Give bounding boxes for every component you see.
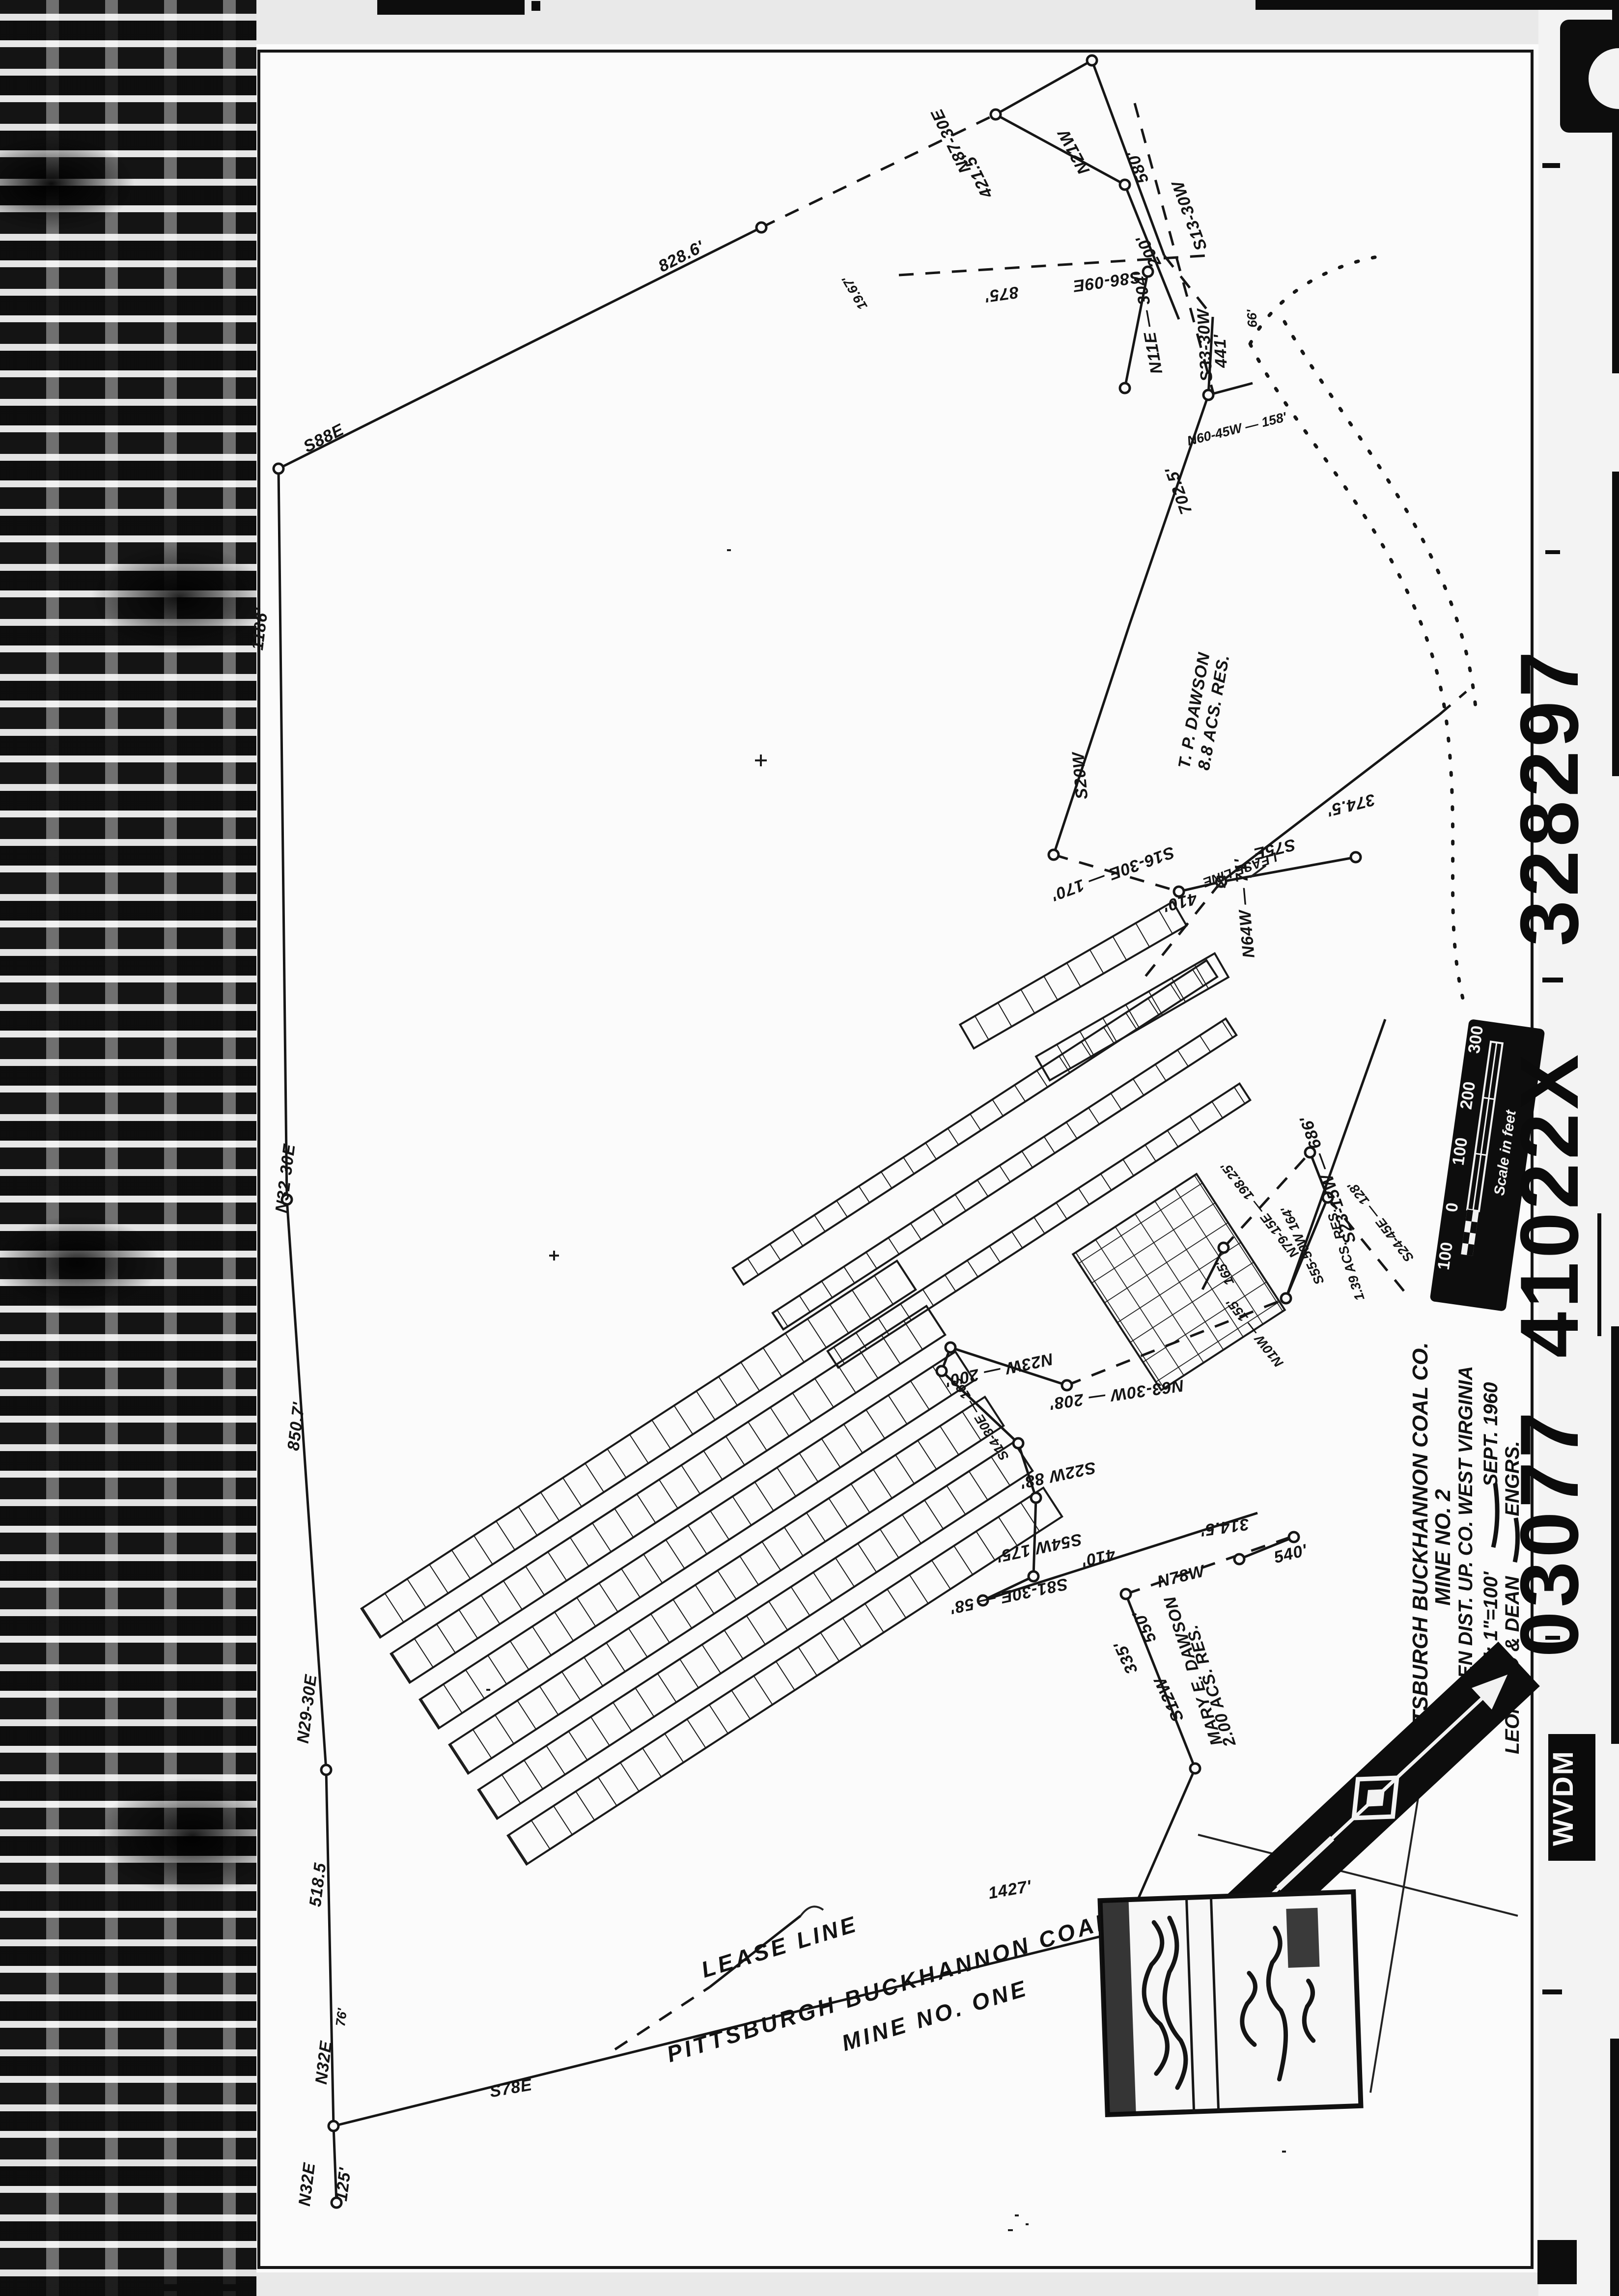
bearing-label: N29-30E (294, 1673, 321, 1744)
scale-tick: 300 (1465, 1024, 1487, 1054)
bearing-label: N11E — 304' (1130, 270, 1166, 376)
bearing-label: S13-30W (1168, 177, 1211, 253)
lease-company-label: PITTSBURGH BUCKHANNON COAL CO. (664, 1890, 1171, 2067)
bearing-label: N32E (295, 2161, 319, 2207)
bearing-label: 314.5' (1199, 1514, 1250, 1540)
bearing-label: 335' (1110, 1638, 1142, 1677)
bearing-label: 875' (983, 282, 1020, 306)
title-date: SEPT. 1960 (1480, 1382, 1502, 1487)
bearing-label: 66' (1244, 308, 1260, 328)
bearing-label: 374.5' (1325, 790, 1377, 820)
bearing-label: S16-30E — 170' (1048, 842, 1177, 904)
bearing-label: 518.5 (306, 1862, 330, 1908)
stream-dotted-line (1250, 255, 1476, 1012)
mine-map-drawing: 1186' N32-30E 850.7' N29-30E 518.5 76' N… (0, 0, 1619, 2296)
frame-number: 328297 (1503, 647, 1595, 947)
microfilm-scan: 1186' N32-30E 850.7' N29-30E 518.5 76' N… (0, 0, 1619, 2296)
bearing-label: N21W (1054, 125, 1094, 177)
bearing-label: 19.67' (839, 273, 870, 312)
bearing-label: 125' (332, 2166, 355, 2202)
lease-line-label: LEASE LINE (698, 1910, 861, 1982)
bearing-label: 441' (1210, 333, 1231, 369)
bearing-label: S81-30E — 58' (948, 1574, 1070, 1618)
bearing-label: N78W (1155, 1562, 1208, 1592)
frame-number: 03077 (1503, 1408, 1595, 1657)
bearing-label: 410' (1080, 1545, 1117, 1570)
bearing-label: S24-45E — 128' (1344, 1178, 1417, 1265)
scale-tick: 100 (1434, 1241, 1457, 1271)
title-mine: MINE NO. 2 (1431, 1489, 1455, 1606)
bearing-label: S20W (1069, 750, 1091, 800)
title-company: PITTSBURGH BUCKHANNON COAL CO. (1408, 1343, 1432, 1758)
agency-code: WVDM (1547, 1750, 1579, 1846)
bearing-label: S12W (1150, 1673, 1188, 1725)
bearing-label: S23-15W — 686' (1296, 1113, 1360, 1246)
bearing-label: N32-30E (272, 1143, 299, 1214)
bearing-label: 410' (1161, 889, 1200, 916)
bearing-label: 1427' (987, 1877, 1033, 1903)
scale-tick: 100 (1449, 1136, 1472, 1166)
bearing-label: 702.5' (1162, 464, 1196, 517)
bearing-label: 1186' (248, 607, 272, 651)
frame-number: 22X (1503, 1051, 1595, 1209)
bearing-label: 421.5' (958, 149, 997, 202)
frame-number: 410 (1503, 1208, 1595, 1358)
bearing-label: S88E (301, 420, 347, 456)
bearing-label: S78E (488, 2075, 534, 2101)
bearing-label: 828.6' (655, 237, 707, 276)
recording-stamp-box (1100, 1892, 1361, 2115)
scale-tick: 200 (1457, 1080, 1479, 1110)
bearing-label: 200' (1132, 231, 1165, 271)
bearing-label: 76' (333, 2007, 350, 2027)
film-frame-bars (163, 0, 1619, 2296)
bearing-label: S22W 88' (1018, 1458, 1097, 1492)
